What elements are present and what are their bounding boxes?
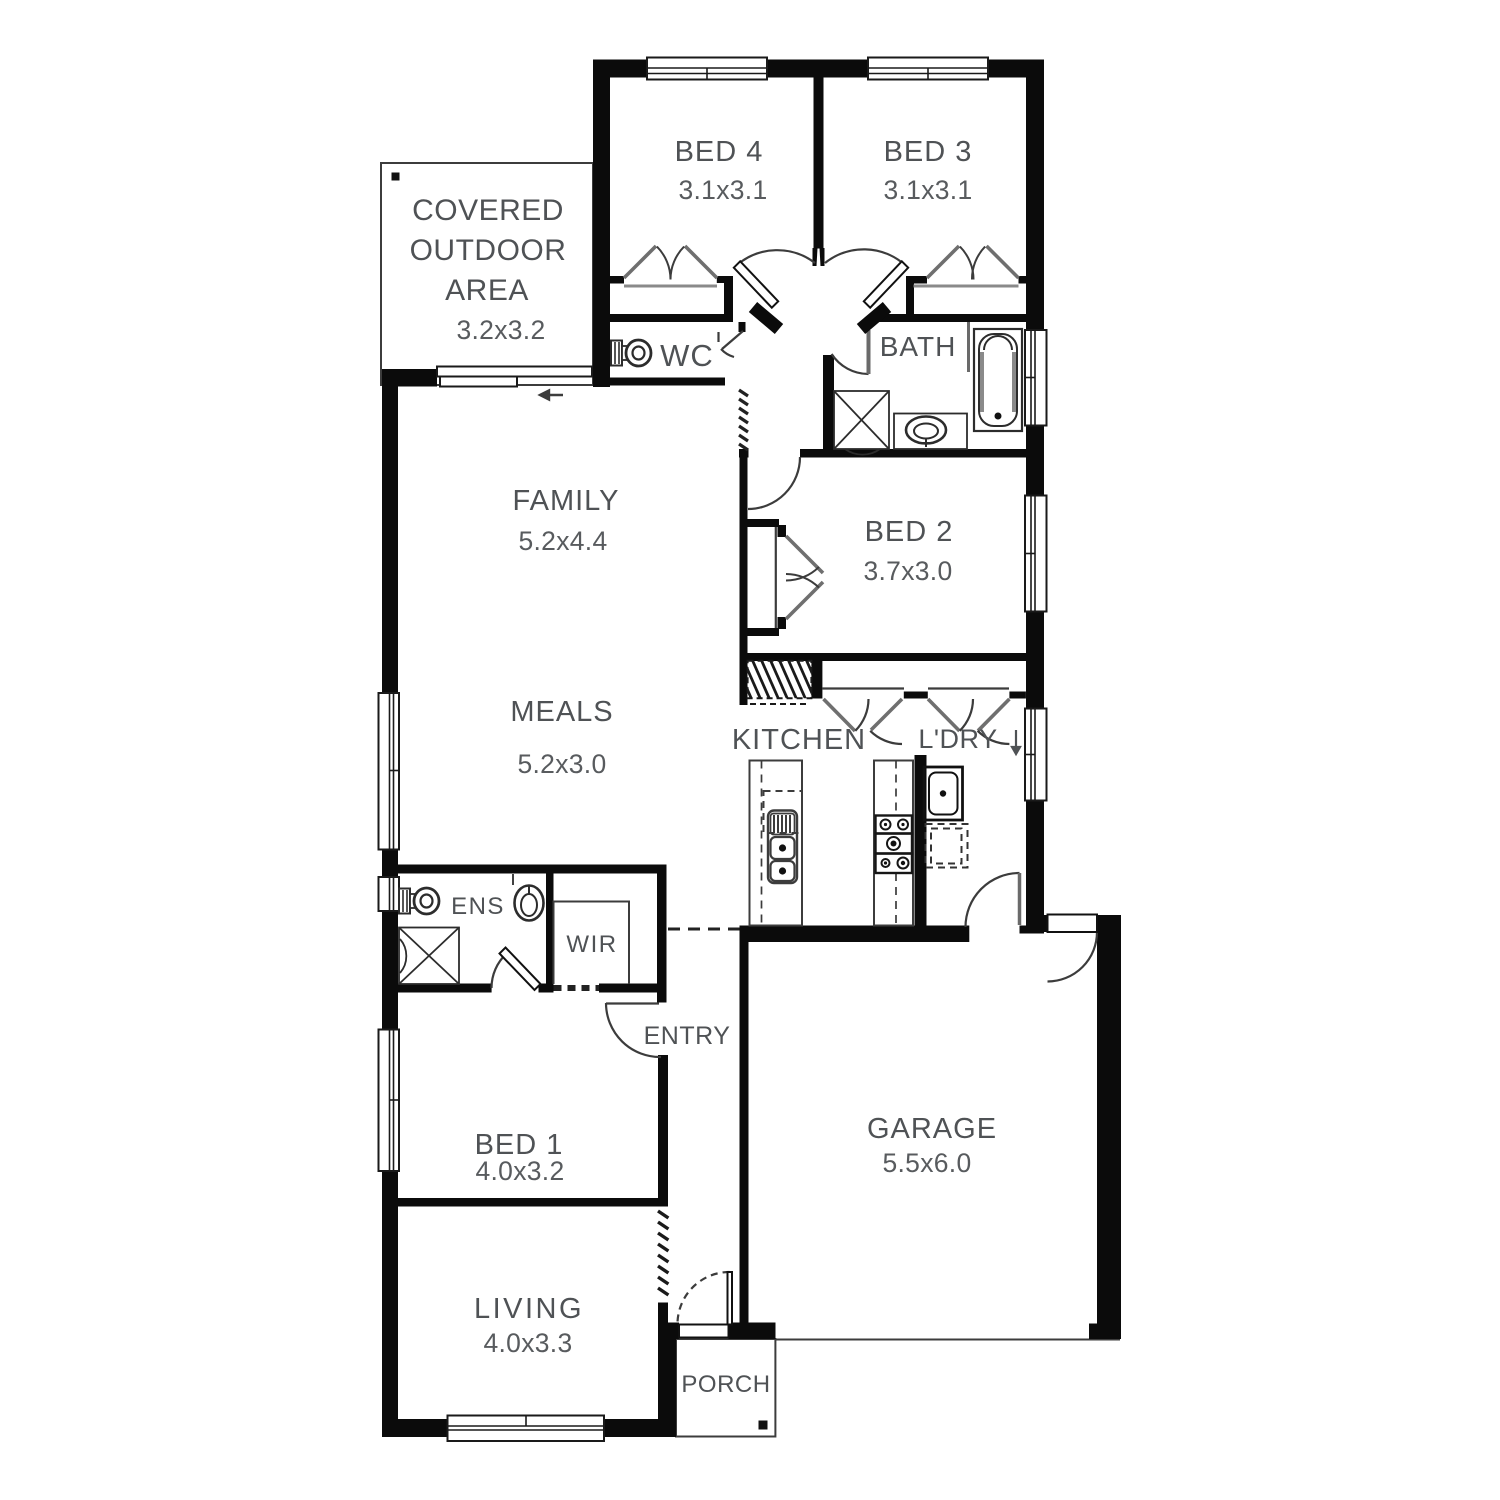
svg-text:5.5x6.0: 5.5x6.0 bbox=[882, 1148, 971, 1178]
svg-text:KITCHEN: KITCHEN bbox=[732, 724, 866, 756]
svg-text:3.1x3.1: 3.1x3.1 bbox=[678, 175, 767, 205]
svg-text:BED 3: BED 3 bbox=[884, 136, 973, 168]
svg-text:BATH: BATH bbox=[880, 331, 957, 362]
svg-text:OUTDOOR: OUTDOOR bbox=[410, 234, 567, 267]
svg-text:COVERED: COVERED bbox=[412, 194, 564, 227]
svg-text:AREA: AREA bbox=[445, 274, 529, 307]
svg-text:5.2x4.4: 5.2x4.4 bbox=[518, 526, 607, 556]
svg-text:FAMILY: FAMILY bbox=[513, 485, 620, 517]
svg-text:MEALS: MEALS bbox=[510, 696, 613, 728]
svg-text:WIR: WIR bbox=[566, 931, 617, 958]
svg-text:BED 4: BED 4 bbox=[675, 136, 764, 168]
svg-text:3.7x3.0: 3.7x3.0 bbox=[863, 556, 952, 586]
svg-text:5.2x3.0: 5.2x3.0 bbox=[517, 749, 606, 779]
svg-text:GARAGE: GARAGE bbox=[867, 1113, 997, 1145]
svg-text:LIVING: LIVING bbox=[474, 1293, 584, 1325]
svg-text:BED 2: BED 2 bbox=[865, 516, 954, 548]
svg-text:ENS: ENS bbox=[451, 893, 505, 920]
svg-text:WC: WC bbox=[660, 338, 714, 373]
svg-text:3.1x3.1: 3.1x3.1 bbox=[883, 175, 972, 205]
svg-text:3.2x3.2: 3.2x3.2 bbox=[456, 315, 545, 345]
svg-text:4.0x3.2: 4.0x3.2 bbox=[475, 1156, 564, 1186]
svg-text:L'DRY: L'DRY bbox=[918, 724, 997, 754]
svg-text:4.0x3.3: 4.0x3.3 bbox=[483, 1328, 572, 1358]
svg-text:PORCH: PORCH bbox=[681, 1371, 770, 1398]
svg-text:ENTRY: ENTRY bbox=[644, 1022, 731, 1050]
